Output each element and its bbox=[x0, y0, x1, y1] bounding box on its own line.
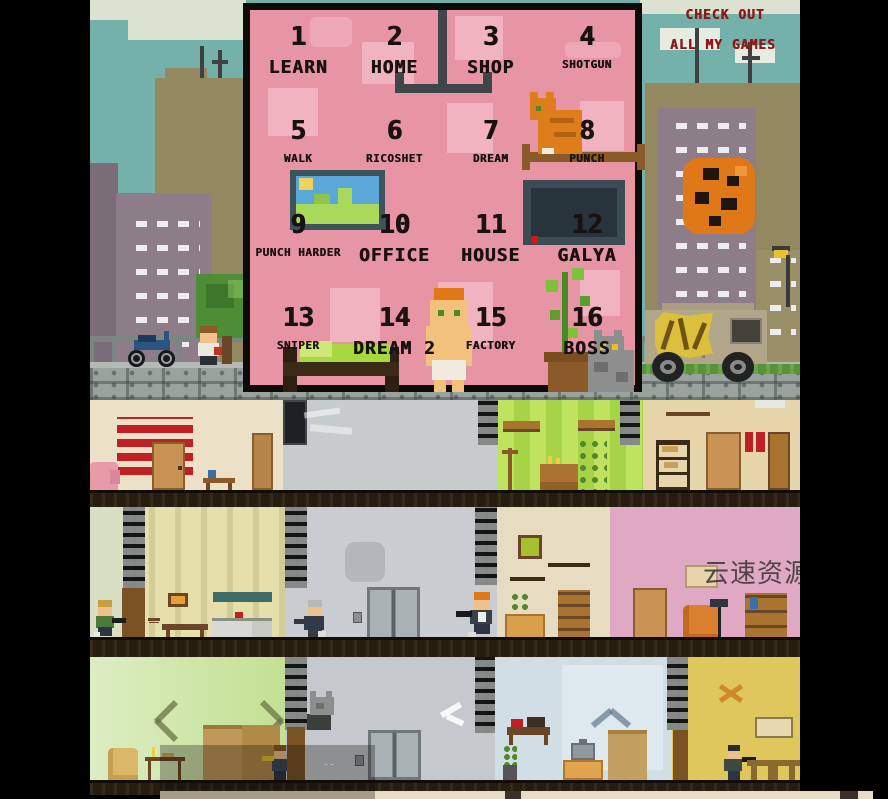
van-windshield bbox=[730, 318, 762, 344]
suitcase bbox=[571, 743, 595, 760]
level-number: 7 bbox=[483, 118, 499, 144]
level-label: SHOP bbox=[467, 59, 514, 77]
level-label: HOUSE bbox=[461, 247, 520, 265]
cloud bbox=[128, 18, 188, 40]
level-number: 15 bbox=[475, 305, 506, 331]
level-15-factory[interactable]: 15FACTORY bbox=[443, 291, 539, 385]
level-4-shotgun[interactable]: 4SHOTGUN bbox=[539, 10, 635, 104]
level-number: 6 bbox=[387, 118, 403, 144]
tree-trunk bbox=[222, 336, 232, 364]
brick-column bbox=[285, 507, 307, 588]
wall-shelf bbox=[503, 421, 540, 432]
gray-cat-small-patch bbox=[316, 703, 324, 709]
table-leg bbox=[228, 483, 232, 490]
potted-plant bbox=[503, 745, 517, 765]
orange-armchair bbox=[683, 605, 721, 640]
graffiti-mark bbox=[678, 318, 690, 350]
door bbox=[706, 432, 741, 490]
level-number: 8 bbox=[579, 118, 595, 144]
game-screen: CHECK OUT ALL MY GAMES bbox=[0, 0, 888, 799]
red-box bbox=[756, 432, 765, 452]
ball-spot bbox=[727, 176, 739, 186]
antenna bbox=[742, 56, 760, 60]
level-label: DREAM 2 bbox=[353, 340, 436, 358]
dresser bbox=[540, 464, 578, 490]
desk-shelf bbox=[507, 727, 550, 735]
shelf-items bbox=[662, 446, 678, 452]
green-picture bbox=[518, 535, 542, 559]
van-graffiti bbox=[655, 312, 713, 358]
level-9-punch-harder[interactable]: 9PUNCH HARDER bbox=[250, 198, 346, 292]
red-cap bbox=[511, 719, 523, 727]
floor-1 bbox=[90, 400, 800, 490]
level-8-punch[interactable]: 8PUNCH bbox=[539, 104, 635, 198]
wood-pillar bbox=[673, 730, 688, 780]
ball-spot bbox=[703, 168, 719, 180]
brick-column bbox=[285, 657, 307, 730]
flower-vine bbox=[577, 438, 607, 490]
shelf-items bbox=[664, 462, 678, 468]
floor-lamp-shade bbox=[710, 599, 728, 607]
graffiti-mark bbox=[692, 322, 707, 350]
candle bbox=[152, 747, 155, 757]
plant-pot bbox=[503, 765, 517, 780]
red-box bbox=[745, 432, 753, 452]
watermark-text: 云速资源网 bbox=[703, 553, 800, 590]
kitchen-shelf bbox=[213, 592, 272, 602]
van-wheel bbox=[652, 352, 684, 382]
potted-plant bbox=[510, 592, 528, 616]
enemy-pants bbox=[98, 627, 112, 636]
level-label: PUNCH bbox=[569, 153, 605, 164]
cat-ledge bbox=[307, 714, 331, 730]
oldman-arm bbox=[294, 619, 306, 624]
enemy-arm-gun bbox=[112, 618, 126, 623]
table-leg bbox=[206, 483, 210, 490]
floor-lamp-pole bbox=[718, 607, 721, 637]
level-16-boss[interactable]: 16BOSS bbox=[539, 291, 635, 385]
kitchen-picture bbox=[168, 593, 188, 607]
wall-sign bbox=[755, 400, 785, 408]
antenna bbox=[200, 46, 204, 80]
gray-cat-small-ear bbox=[310, 691, 316, 698]
level-number: 10 bbox=[379, 212, 410, 238]
enemy-face bbox=[728, 751, 740, 759]
level-number: 2 bbox=[387, 24, 403, 50]
level-10-office[interactable]: 10OFFICE bbox=[346, 198, 442, 292]
orange-ball bbox=[683, 158, 755, 234]
motorcycle-handlebars bbox=[164, 331, 169, 342]
level-label: RICOSHET bbox=[366, 153, 423, 164]
level-14-dream-2[interactable]: 14DREAM 2 bbox=[346, 291, 442, 385]
dresser bbox=[558, 590, 590, 640]
door-knob bbox=[178, 466, 182, 470]
enemy-body bbox=[724, 759, 742, 771]
coat-rack bbox=[508, 448, 512, 490]
level-number: 4 bbox=[579, 24, 595, 50]
curtain-rod bbox=[666, 412, 710, 416]
street-character-hand-item bbox=[214, 347, 222, 355]
van-wheel bbox=[722, 352, 754, 382]
promo-line-1[interactable]: CHECK OUT bbox=[655, 8, 795, 24]
door bbox=[252, 433, 273, 490]
level-number: 13 bbox=[282, 305, 313, 331]
level-7-dream[interactable]: 7DREAM bbox=[443, 104, 539, 198]
ball-spot bbox=[709, 216, 721, 226]
brick-column bbox=[478, 400, 498, 445]
motorcycle-wheel bbox=[158, 350, 175, 367]
light-switch bbox=[353, 612, 362, 623]
shadow-overlay bbox=[160, 745, 375, 799]
level-2-home[interactable]: 2HOME bbox=[346, 10, 442, 104]
ball-spot bbox=[721, 198, 737, 210]
street-character-face bbox=[200, 333, 217, 343]
kitchen-chair bbox=[148, 618, 160, 621]
level-number: 11 bbox=[475, 212, 506, 238]
streetlight-pole bbox=[786, 255, 790, 307]
level-number: 3 bbox=[483, 24, 499, 50]
brick-column bbox=[475, 657, 495, 733]
level-label: SNIPER bbox=[277, 340, 320, 351]
book bbox=[750, 597, 758, 609]
level-13-sniper[interactable]: 13SNIPER bbox=[250, 291, 346, 385]
brick-column bbox=[620, 400, 640, 445]
level-label: SHOTGUN bbox=[562, 59, 612, 70]
motorcycle-wheel bbox=[128, 350, 145, 367]
counter-item bbox=[235, 612, 243, 618]
graffiti-mark bbox=[660, 320, 674, 350]
antenna bbox=[695, 28, 699, 83]
level-label: BOSS bbox=[563, 340, 610, 358]
brick-column bbox=[667, 657, 688, 730]
floor-2: 云速资源网 bbox=[90, 507, 800, 640]
elevator-doors bbox=[368, 730, 421, 780]
level-6-ricoshet[interactable]: 6RICOSHET bbox=[346, 104, 442, 198]
tall-cabinet bbox=[768, 432, 790, 490]
level-11-house[interactable]: 11HOUSE bbox=[443, 198, 539, 292]
motorcycle-seat bbox=[138, 335, 156, 342]
elevator-doors bbox=[367, 587, 420, 640]
hero-gun bbox=[456, 611, 472, 617]
wood-table-leg bbox=[751, 766, 757, 780]
wardrobe bbox=[608, 730, 647, 780]
curtain-rod bbox=[510, 577, 545, 581]
brick-column bbox=[123, 507, 145, 588]
door bbox=[633, 588, 667, 640]
level-label: HOME bbox=[371, 59, 418, 77]
level-number: 5 bbox=[290, 118, 306, 144]
level-3-shop[interactable]: 3SHOP bbox=[443, 10, 539, 104]
dark-window bbox=[283, 400, 307, 445]
level-label: OFFICE bbox=[359, 247, 430, 265]
oldman-face bbox=[308, 607, 322, 616]
level-number: 16 bbox=[571, 305, 602, 331]
street-character-pants bbox=[200, 356, 217, 365]
promo-line-2[interactable]: ALL MY GAMES bbox=[648, 38, 798, 54]
level-12-galya[interactable]: 12GALYA bbox=[539, 198, 635, 292]
antenna bbox=[212, 60, 228, 64]
level-label: FACTORY bbox=[466, 340, 516, 351]
level-select-panel: 1LEARN 2HOME 3SHOP 4SHOTGUN 5WALK 6RICOS… bbox=[243, 3, 642, 392]
brick-column bbox=[475, 507, 497, 585]
table-leg bbox=[148, 761, 151, 780]
tan-armchair bbox=[108, 748, 138, 780]
level-grid: 1LEARN 2HOME 3SHOP 4SHOTGUN 5WALK 6RICOS… bbox=[250, 10, 635, 385]
level-label: GALYA bbox=[557, 247, 616, 265]
wood-door bbox=[122, 588, 145, 640]
hero-face bbox=[474, 600, 490, 610]
wall-shelf bbox=[578, 420, 615, 431]
cup bbox=[208, 470, 216, 478]
desk-items bbox=[527, 717, 545, 727]
enemy-pants bbox=[728, 771, 740, 780]
hero-pants bbox=[474, 624, 490, 634]
enemy-face bbox=[98, 607, 112, 616]
level-number: 9 bbox=[290, 212, 306, 238]
suitcase-handle bbox=[579, 739, 587, 743]
sliver-post bbox=[505, 791, 521, 799]
wall-smudge bbox=[345, 542, 385, 582]
wood-table-leg bbox=[789, 766, 795, 780]
gray-cat-small-ear bbox=[326, 691, 332, 698]
ball-spot bbox=[695, 192, 709, 204]
sliver-post bbox=[840, 791, 858, 799]
level-5-walk[interactable]: 5WALK bbox=[250, 104, 346, 198]
level-label: WALK bbox=[284, 153, 313, 164]
orange-cabinet bbox=[563, 760, 603, 780]
level-label: DREAM bbox=[473, 153, 509, 164]
picture-frame bbox=[755, 717, 793, 738]
ball-highlight bbox=[735, 166, 747, 176]
level-number: 12 bbox=[571, 212, 602, 238]
coat-rack-hooks bbox=[502, 450, 518, 454]
candle bbox=[548, 456, 552, 464]
level-1-learn[interactable]: 1LEARN bbox=[250, 10, 346, 104]
hero-shirt bbox=[478, 612, 486, 622]
level-label: LEARN bbox=[269, 59, 328, 77]
desk-legs bbox=[509, 735, 548, 745]
curtain-rod bbox=[548, 563, 590, 567]
pink-armchair-arm bbox=[110, 470, 120, 484]
level-number: 14 bbox=[379, 305, 410, 331]
level-label: PUNCH HARDER bbox=[255, 247, 340, 258]
oldman-body bbox=[304, 616, 324, 630]
wood-table-pedestal bbox=[768, 766, 778, 780]
level-number: 1 bbox=[290, 24, 306, 50]
